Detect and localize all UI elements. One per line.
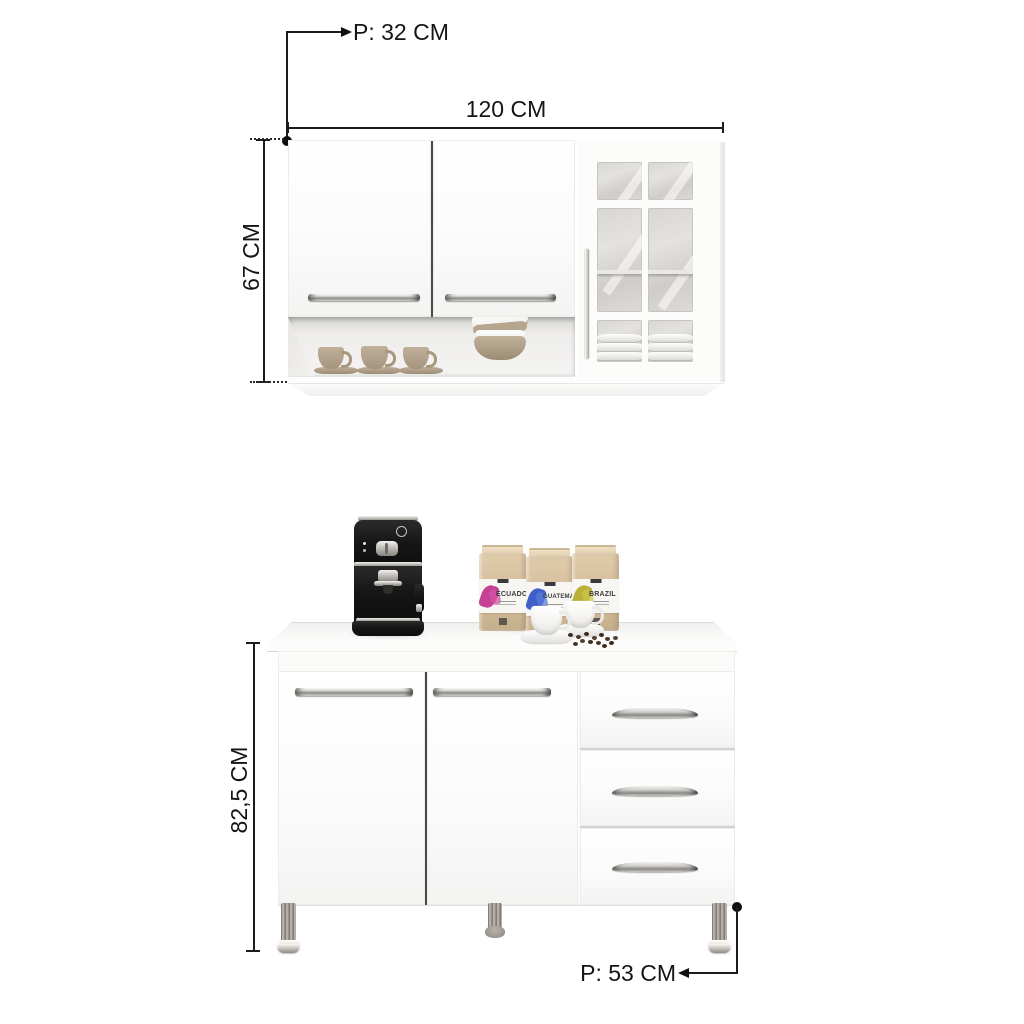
wand-tip [416,604,422,612]
wall-door-left [288,140,431,317]
espresso-cup-front [531,606,562,635]
machine-base [352,621,424,636]
bag-tab [590,579,601,583]
bag-label-text: BRAZIL [589,591,616,598]
glass-pane [597,320,642,362]
bag-tab [497,579,508,583]
leader-line-horizontal [286,31,342,33]
bag-label-text: ECUADOR [496,591,526,598]
tick-bottom [246,950,260,952]
indicator-lights [363,542,366,545]
plate-stack [597,333,642,360]
dial-marker [385,543,388,554]
base-door-right [427,671,578,905]
bag-label-text: GUATEMALA [543,594,573,600]
machine-lower-body [354,566,422,624]
bag-label: ECUADOR [479,579,526,613]
bag-tab [544,582,555,586]
arrow-right-icon [341,27,352,37]
bag-label-lines [498,601,516,602]
cabinet-leg-right [712,903,727,944]
glass-pane [648,208,693,312]
shelf-side-wall [288,317,314,376]
wall-door-middle [433,140,575,317]
plate-stack [648,333,693,360]
tick-top [246,642,260,644]
apron [278,651,735,672]
dimension-line [288,127,724,129]
drawer-stack [580,671,735,905]
drawer-handle [612,708,698,718]
arrow-left-icon [678,968,689,978]
bowl-stack [470,317,530,375]
bag-label-lines [545,604,563,605]
tick-right [722,122,724,133]
espresso-machine [352,514,424,636]
base-cabinet-body [278,651,735,905]
dotted-leader-top [250,138,284,140]
cabinet-leg-left [281,903,296,944]
glass-pane [597,208,642,312]
cabinet-side-face [720,142,725,382]
dimension-line [253,643,255,952]
wall-cabinet [288,140,725,396]
door-handle [445,294,556,301]
shelf-board [288,376,575,383]
drawer-2 [580,750,735,826]
coffee-beans [568,633,573,637]
base-depth-label: P: 53 CM [556,960,676,987]
coffee-mug [403,347,429,369]
leader-line-horizontal [689,972,738,974]
open-shelf [288,317,575,376]
door-handle [433,688,551,696]
leg-foot [485,926,505,938]
spout [383,585,393,594]
leg-foot [277,940,300,953]
tick-left [287,122,289,133]
base-cabinet [266,620,739,955]
wall-width-label: 120 CM [288,96,724,123]
door-handle [295,688,413,696]
leader-line-vertical [736,907,738,974]
coffee-mug [361,346,388,369]
glass-pane [648,162,693,200]
door-handle [308,294,420,301]
glass-pane [597,162,642,200]
coffee-mug [318,347,344,369]
dotted-leader-bottom [250,381,287,383]
glass-door [578,140,720,380]
coffee-bag-ecuador: ECUADOR [479,544,526,631]
drawer-1 [580,671,735,748]
drawer-handle [612,862,698,872]
product-dimension-diagram: P: 32 CM 120 CM 67 CM [0,0,1024,1024]
drawer-3 [580,828,735,905]
glass-pane [648,320,693,362]
bowl-tan [474,336,526,360]
wall-depth-label: P: 32 CM [353,19,449,46]
leg-foot [708,940,731,953]
base-height-label: 82,5 CM [225,740,253,840]
cabinet-skirt [288,383,725,396]
steam-wand [414,584,424,612]
wall-height-label: 67 CM [237,217,265,297]
logo-ring-icon [396,526,407,537]
glass-door-handle [585,249,589,359]
drawer-handle [612,786,698,796]
base-door-left [278,671,425,905]
bag-mark [499,618,507,625]
